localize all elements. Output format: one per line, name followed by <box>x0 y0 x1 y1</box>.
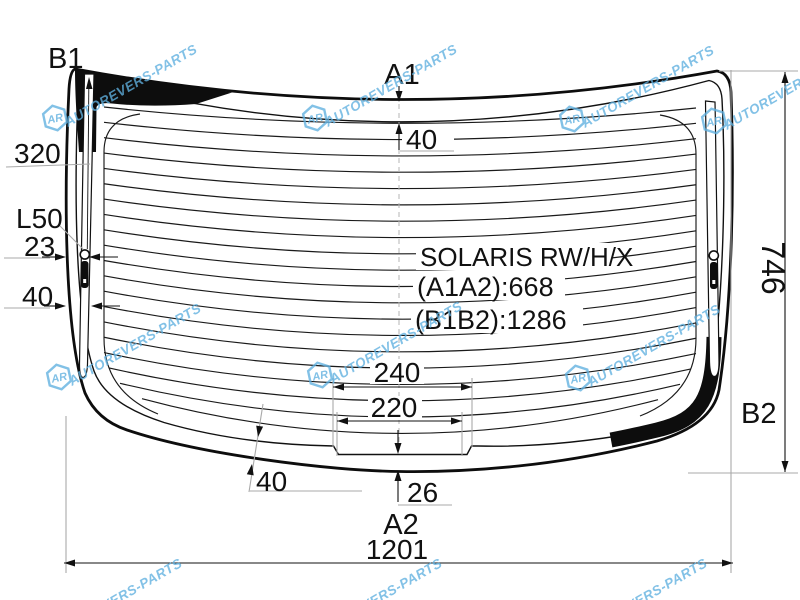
watermark-logo-abbr: AR <box>49 371 68 386</box>
dim-strip-to-grid-label: 40 <box>22 281 53 312</box>
dim-strip-length-label: 320 <box>14 138 61 169</box>
marker-b2-label: B2 <box>741 398 776 430</box>
dim-tab-inner-width-label: 220 <box>371 392 418 423</box>
left-connector-body <box>81 261 89 288</box>
watermark: ARAUTOREVERS-PARTS <box>559 42 717 133</box>
heater-line <box>104 168 696 188</box>
watermark: ARAUTOREVERS-PARTS <box>27 555 185 600</box>
dim-grid-to-bottom-label: 40 <box>256 466 287 497</box>
right-connector-body <box>710 262 718 289</box>
heater-line <box>104 276 696 303</box>
dim-tab-to-edge-label: 26 <box>407 477 438 508</box>
part-model-label: SOLARIS RW/H/X <box>420 242 633 272</box>
diagram-stage: B1 A1 320 L50 23 40 40 SOLARIS RW/H/X (A… <box>0 0 800 600</box>
right-connector-terminal <box>709 251 718 260</box>
heater-line <box>104 199 696 221</box>
watermark-text: AUTOREVERS-PARTS <box>578 42 717 131</box>
dim-glass-width-label: 1201 <box>366 534 428 565</box>
right-connector-slot <box>712 280 715 284</box>
right-heater-strip <box>706 101 720 377</box>
dim-strip-width-label: 23 <box>24 231 55 262</box>
watermark-logo-abbr: AR <box>562 113 581 128</box>
heater-line <box>104 214 696 237</box>
watermark-text: AUTOREVERS-PARTS <box>46 555 185 600</box>
watermark-text: AUTOREVERS-PARTS <box>321 41 460 130</box>
rear-window-diagram: B1 A1 320 L50 23 40 40 SOLARIS RW/H/X (A… <box>0 0 800 600</box>
part-diagonal-a-label: (A1A2):668 <box>417 272 554 302</box>
marker-b1-label: B1 <box>48 43 83 75</box>
watermark-text: AUTOREVERS-PARTS <box>571 555 710 600</box>
heater-line <box>104 138 696 156</box>
left-connector-slot <box>83 279 86 283</box>
watermark-logo-abbr: AR <box>704 115 723 130</box>
dim-tab-outer-width-label: 240 <box>374 357 421 388</box>
watermark-logo-abbr: AR <box>310 369 329 384</box>
dim-top-edge-to-grid-label: 40 <box>406 124 437 155</box>
watermark-logo-abbr: AR <box>45 112 64 127</box>
heater-line <box>104 184 696 205</box>
watermark: ARAUTOREVERS-PARTS <box>302 41 460 132</box>
watermark: ARAUTOREVERS-PARTS <box>552 555 710 600</box>
watermark-logo-abbr: AR <box>305 112 324 127</box>
dim-glass-height-label: 746 <box>755 241 791 294</box>
dim-connector-label: L50 <box>16 203 63 234</box>
watermark-logo-abbr: AR <box>568 372 587 387</box>
left-connector-terminal <box>80 250 89 259</box>
